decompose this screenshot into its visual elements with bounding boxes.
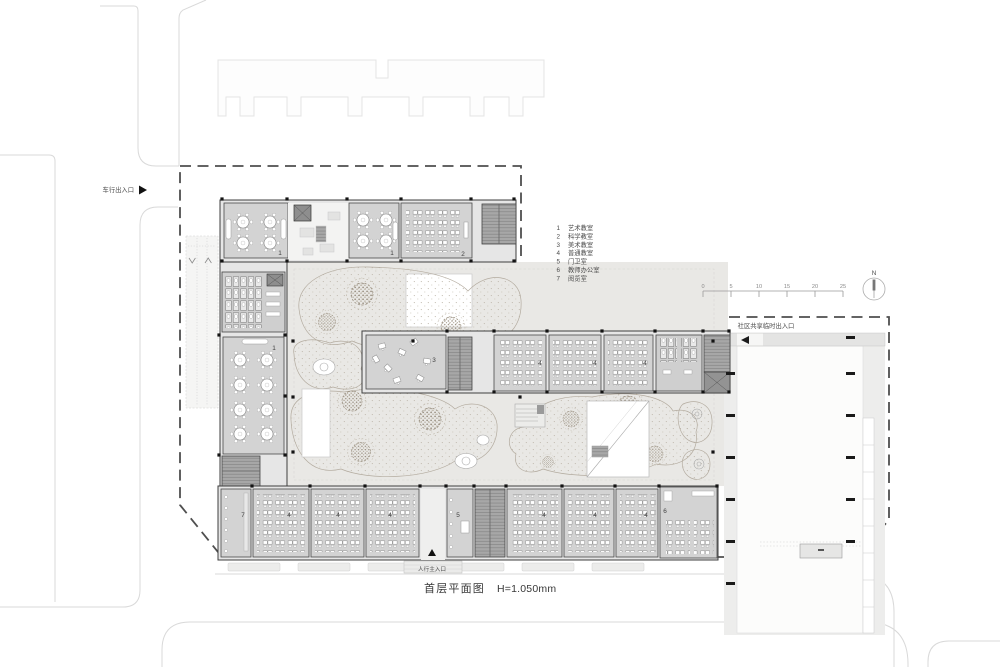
legend-name: 教师办公室 [568, 265, 599, 274]
column-dot [545, 390, 548, 393]
column-dot [600, 329, 603, 332]
pedestrian-entrance-label: 人行主入口 [418, 565, 446, 573]
column-dot [727, 329, 730, 332]
legend-name: 美术教室 [568, 240, 593, 249]
column-dot [715, 484, 718, 487]
main-entrance-opening [421, 489, 445, 560]
scale-tick-label: 5 [729, 284, 732, 290]
column-dot [345, 197, 348, 200]
court-column-mark [726, 582, 735, 585]
court-column-mark [726, 372, 735, 375]
column-dot [345, 259, 348, 262]
scale-tick-label: 25 [840, 284, 846, 290]
plan-title: 首层平面图 [424, 581, 485, 595]
column-dot [711, 339, 714, 342]
room-number-label: 6 [663, 508, 667, 515]
legend-name: 门卫室 [568, 257, 587, 266]
column-dot [492, 390, 495, 393]
scale-tick-label: 20 [812, 284, 818, 290]
room-number-label: 2 [461, 251, 465, 258]
floor-plan-drawing: 1 1 2 1 3 4 4 4 7 4 4 4 5 4 4 4 6 车行出入口 … [0, 0, 1000, 667]
entrance-lobby [288, 203, 349, 260]
legend-name: 普通教室 [568, 248, 593, 257]
court-column-mark [846, 372, 855, 375]
column-dot [399, 197, 402, 200]
road-edge [0, 155, 55, 602]
road-edge [179, 0, 206, 166]
room-science-classroom [401, 203, 472, 258]
column-dot [291, 450, 294, 453]
column-dot [418, 484, 421, 487]
room-number-label: 7 [241, 512, 245, 519]
column-dot [291, 395, 294, 398]
room-teacher-office [660, 487, 717, 558]
community-entrance-opening [737, 334, 763, 346]
column-dot [283, 394, 286, 397]
column-dot [512, 259, 515, 262]
court-side-wall [863, 418, 874, 633]
column-dot [657, 484, 660, 487]
plan-height-note: H=1.050mm [497, 583, 556, 595]
legend-num: 5 [556, 259, 560, 266]
room-number-label: 4 [643, 360, 647, 367]
legend-num: 2 [556, 233, 560, 240]
legend-num: 3 [556, 242, 560, 249]
plan-caption: 首层平面图 H=1.050mm [424, 581, 556, 595]
column-dot [469, 259, 472, 262]
stairwell-top-right [482, 204, 516, 244]
column-dot [560, 484, 563, 487]
column-dot [492, 329, 495, 332]
parking-ramp [186, 236, 218, 408]
court-column-mark [846, 540, 855, 543]
column-dot [613, 484, 616, 487]
room-number-label: 5 [456, 512, 460, 519]
room-number-label: 1 [272, 345, 276, 352]
column-dot [283, 453, 286, 456]
legend-name: 阅览室 [568, 273, 587, 282]
court-column-mark [726, 540, 735, 543]
column-dot [217, 333, 220, 336]
column-dot [445, 329, 448, 332]
column-dot [512, 197, 515, 200]
north-needle [873, 280, 876, 291]
room-number-label: 4 [542, 512, 546, 519]
column-dot [469, 197, 472, 200]
court-column-mark [846, 498, 855, 501]
road-edge [100, 6, 179, 166]
stairwell-middle [448, 337, 472, 390]
community-entrance-label: 社区共享临时出入口 [738, 321, 795, 330]
legend-name: 艺术教室 [568, 223, 593, 232]
toilets-left [222, 272, 285, 332]
classrooms-middle [494, 335, 653, 391]
road-edge [0, 207, 178, 607]
room-art-classroom-c [223, 337, 284, 454]
column-dot [411, 339, 414, 342]
legend-num: 7 [556, 275, 560, 282]
room-number-label: 4 [388, 512, 392, 519]
room-number-label: 4 [538, 360, 542, 367]
classrooms-bottom-west [253, 489, 419, 557]
column-dot [399, 259, 402, 262]
column-dot [291, 339, 294, 342]
column-dot [518, 395, 521, 398]
room-guard-room [447, 489, 473, 557]
column-dot [711, 450, 714, 453]
room-number-label: 4 [287, 512, 291, 519]
column-dot [472, 484, 475, 487]
column-dot [285, 197, 288, 200]
stairwell-left [222, 456, 260, 486]
room-number-label: 1 [390, 250, 394, 257]
vehicle-entrance-label: 车行出入口 [103, 185, 134, 194]
column-dot [653, 390, 656, 393]
room-number-label: 4 [644, 512, 648, 519]
courtyard-ramp [587, 401, 649, 477]
playground-court [724, 333, 885, 635]
stairwell-middle-east [704, 335, 730, 393]
court-column-mark [726, 414, 735, 417]
court-column-mark [846, 456, 855, 459]
court-column-mark [846, 414, 855, 417]
court-column-mark [726, 498, 735, 501]
court-column-mark [726, 456, 735, 459]
legend-num: 4 [556, 250, 560, 257]
column-dot [250, 484, 253, 487]
vehicle-entrance-annotation: 车行出入口 [103, 185, 147, 195]
column-dot [220, 197, 223, 200]
column-dot [444, 484, 447, 487]
room-number-label: 1 [278, 250, 282, 257]
scale-tick-label: 15 [784, 284, 790, 290]
column-dot [545, 329, 548, 332]
bottom-wing [218, 486, 718, 573]
courtyard-canopy [302, 389, 330, 457]
north-label: N [872, 270, 877, 277]
column-dot [701, 329, 704, 332]
column-dot [308, 484, 311, 487]
room-number-label: 3 [432, 357, 436, 364]
column-dot [701, 390, 704, 393]
road-edge [928, 641, 1000, 667]
scale-tick-label: 0 [701, 284, 704, 290]
column-dot [363, 484, 366, 487]
stairwell-bottom [475, 489, 505, 557]
column-dot [283, 333, 286, 336]
classrooms-bottom-east [507, 489, 658, 557]
neighbor-building-outline [218, 60, 544, 116]
vehicle-entrance-arrow-icon [139, 186, 147, 195]
column-dot [445, 390, 448, 393]
toilets-middle [656, 335, 702, 391]
court-column-mark [846, 336, 855, 339]
top-wing [220, 200, 516, 262]
room-reading-room [221, 489, 251, 557]
column-dot [653, 329, 656, 332]
column-dot [504, 484, 507, 487]
room-number-label: 4 [336, 512, 340, 519]
room-number-label: 4 [593, 512, 597, 519]
scale-tick-label: 10 [756, 284, 762, 290]
legend-name: 科学教室 [568, 231, 593, 240]
legend-num: 6 [556, 267, 560, 274]
column-dot [220, 259, 223, 262]
column-dot [600, 390, 603, 393]
left-wing [220, 262, 287, 487]
north-arrow: N [863, 270, 885, 300]
amphitheater-steps [515, 404, 545, 427]
column-dot [285, 259, 288, 262]
legend-num: 1 [556, 225, 560, 232]
column-dot [217, 453, 220, 456]
middle-wing [362, 331, 730, 393]
column-dot [727, 390, 730, 393]
room-number-label: 4 [593, 360, 597, 367]
